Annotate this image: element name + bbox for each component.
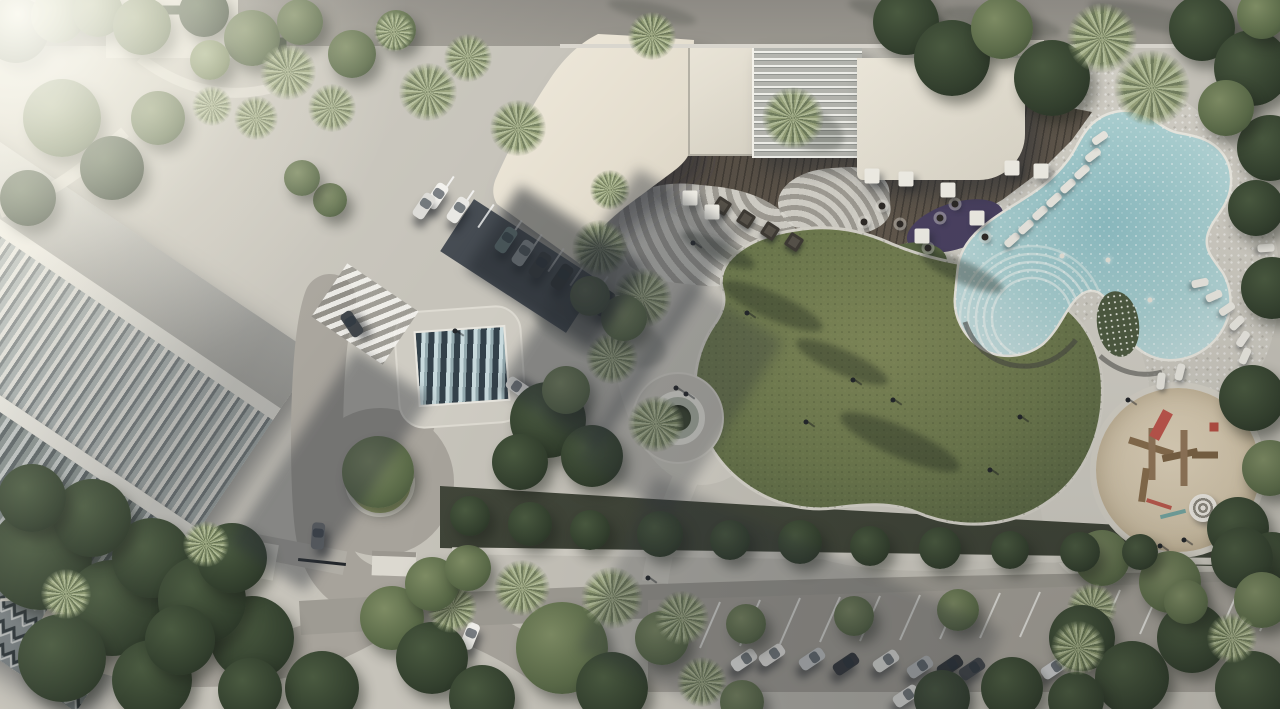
tree — [570, 510, 610, 550]
shrub-patch — [837, 279, 883, 313]
car — [311, 522, 326, 550]
person — [891, 398, 896, 403]
tree — [0, 464, 66, 532]
tree — [80, 136, 144, 200]
tree — [1095, 641, 1169, 709]
palm — [494, 560, 550, 616]
lounger — [1257, 243, 1275, 252]
block — [1192, 452, 1218, 459]
tree — [313, 183, 347, 217]
table-set — [982, 234, 989, 241]
person — [453, 329, 458, 334]
umbrella — [865, 169, 880, 184]
person — [1182, 538, 1187, 543]
car — [797, 646, 827, 672]
person — [1018, 415, 1023, 420]
palm — [374, 12, 414, 52]
umbrella — [1005, 161, 1020, 176]
palm — [260, 44, 316, 100]
car — [831, 651, 861, 677]
tree — [190, 40, 230, 80]
palm — [572, 220, 628, 276]
tree — [328, 30, 376, 78]
tree — [1198, 80, 1254, 136]
palm — [183, 521, 229, 567]
palm — [655, 591, 709, 645]
table-set — [879, 203, 886, 210]
palm — [1114, 50, 1190, 126]
tree — [542, 366, 590, 414]
swimmer — [1106, 258, 1111, 263]
tree — [726, 604, 766, 644]
person — [851, 378, 856, 383]
palm — [628, 12, 676, 60]
tree — [637, 511, 683, 557]
tree — [131, 91, 185, 145]
tree — [576, 652, 648, 709]
swimmer — [1148, 298, 1153, 303]
aerial-render — [0, 0, 1280, 709]
tree — [450, 496, 490, 536]
tree — [850, 526, 890, 566]
umbrella — [970, 211, 985, 226]
tree — [919, 527, 961, 569]
tree — [277, 0, 323, 45]
tree — [285, 651, 359, 709]
table-set — [897, 221, 904, 228]
palm — [444, 34, 492, 82]
umbrella — [915, 229, 930, 244]
person — [1158, 544, 1163, 549]
palm — [308, 84, 356, 132]
car — [757, 642, 787, 668]
tree — [145, 605, 215, 675]
tree — [570, 276, 610, 316]
tree — [937, 589, 979, 631]
person — [646, 576, 651, 581]
table-set — [861, 219, 868, 226]
tree — [971, 0, 1033, 59]
tree — [981, 657, 1043, 709]
person — [745, 311, 750, 316]
umbrella — [899, 172, 914, 187]
block — [1181, 430, 1188, 486]
person — [684, 392, 689, 397]
tree — [1164, 580, 1208, 624]
person — [1126, 398, 1131, 403]
tree — [508, 502, 552, 546]
umbrella — [941, 183, 956, 198]
car — [871, 648, 901, 674]
entry-canopy-skylights — [413, 325, 510, 407]
umbrella — [1034, 164, 1049, 179]
palm — [234, 96, 278, 140]
tree — [1060, 532, 1100, 572]
palm — [490, 100, 546, 156]
table-set — [952, 201, 959, 208]
umbrella — [705, 205, 720, 220]
palm — [628, 396, 684, 452]
tree — [1122, 534, 1158, 570]
tree — [0, 170, 56, 226]
palm — [590, 170, 630, 210]
tree — [1219, 365, 1280, 431]
palm — [1207, 613, 1257, 663]
block — [1210, 423, 1219, 432]
tree — [834, 596, 874, 636]
person — [674, 386, 679, 391]
person — [691, 241, 696, 246]
umbrella — [683, 191, 698, 206]
car — [729, 647, 759, 673]
table-set — [937, 215, 944, 222]
tree — [342, 436, 414, 508]
tree — [445, 545, 491, 591]
palm — [762, 87, 824, 149]
table-set — [925, 245, 932, 252]
person — [988, 468, 993, 473]
tree — [561, 425, 623, 487]
tree — [284, 160, 320, 196]
tree — [1228, 180, 1280, 236]
tree — [18, 614, 106, 702]
swimmer — [1060, 254, 1065, 259]
palm — [41, 569, 91, 619]
tree — [492, 434, 548, 490]
palm — [581, 567, 643, 629]
palm — [192, 86, 232, 126]
tree — [710, 520, 750, 560]
person — [804, 420, 809, 425]
tree — [991, 531, 1029, 569]
palm — [1051, 621, 1105, 675]
tree — [778, 520, 822, 564]
